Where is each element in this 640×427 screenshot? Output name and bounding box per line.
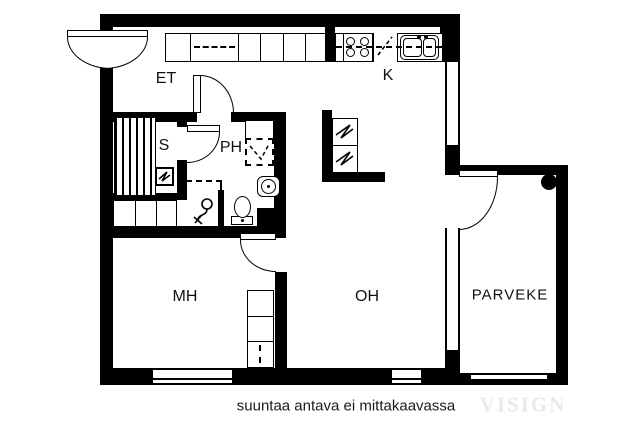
shower-screen-wall (218, 190, 224, 226)
closet-rail-dashed (194, 46, 235, 48)
storage-cell (156, 200, 177, 227)
shower-area-dashed (220, 180, 222, 191)
bedroom-door-arc (240, 240, 276, 272)
room-label-bathroom: PH (220, 139, 242, 157)
hall-closet-cell (283, 33, 306, 62)
living-room-window-balcony (445, 228, 460, 350)
sauna-heater-icon (155, 167, 174, 186)
flue-wall-horizontal (322, 172, 385, 182)
sink-faucet-icon (417, 35, 421, 39)
room-label-balcony: PARVEKE (472, 287, 548, 304)
hall-closet-cell (238, 33, 261, 62)
hall-closet-cell (260, 33, 284, 62)
sauna-benches (114, 117, 156, 196)
bedroom-window (153, 370, 232, 383)
hall-closet-cell (165, 33, 191, 62)
wardrobe-rail-dashed (259, 345, 261, 363)
sauna-door-leaf (187, 125, 220, 132)
outer-wall-top (100, 14, 460, 27)
shower-icon (192, 196, 216, 226)
flue-shaft-icon (332, 145, 358, 173)
kitchen-corner-wall (440, 27, 460, 62)
stove-burner-icon (346, 48, 355, 57)
basin-nook-wall (257, 208, 286, 227)
balcony-door-arc (459, 177, 498, 230)
sauna-door-arc (187, 132, 220, 163)
room-label-kitchen: K (383, 67, 394, 85)
flue-shaft-icon (332, 118, 358, 146)
bathroom-cabinet (245, 120, 274, 139)
bathroom-door-arc (200, 75, 234, 113)
room-label-hallway: ET (156, 70, 176, 88)
balcony-wall-right (556, 165, 568, 385)
kitchen-window (445, 62, 460, 145)
counter-edge-dashed (336, 46, 442, 48)
balcony-door-leaf (459, 170, 498, 177)
toilet-icon (234, 196, 251, 218)
floor-plan: ET K S PH MH OH PARVEKE suuntaa antava e… (0, 0, 640, 427)
wardrobe-cell (247, 316, 274, 342)
hall-kitchen-stub-wall (325, 14, 335, 62)
shower-area-dashed (186, 180, 222, 182)
entrance-door-leaf (67, 30, 148, 37)
floor-drain-icon (541, 174, 557, 190)
storage-cell (135, 200, 157, 227)
bathroom-door-leaf (193, 75, 201, 113)
stove-burner-icon (346, 37, 355, 46)
disclaimer-caption: suuntaa antava ei mittakaavassa (237, 398, 455, 415)
sauna-bath-wall-upper (177, 112, 187, 127)
sink-faucet-icon (424, 35, 428, 39)
hall-closet-cell (305, 33, 326, 62)
room-label-sauna: S (159, 137, 170, 155)
entrance-door-arc-in (104, 37, 148, 69)
stove-burner-icon (360, 37, 369, 46)
toilet-flush-dot (241, 219, 244, 222)
washbasin-drain (267, 185, 270, 188)
bedroom-door-leaf (240, 233, 276, 240)
wardrobe-cell (247, 290, 274, 317)
stove-burner-icon (360, 48, 369, 57)
room-label-living-room: OH (355, 288, 379, 306)
balcony-window (470, 374, 548, 380)
bedroom-living-wall (275, 272, 287, 368)
washing-machine-icon (245, 138, 274, 166)
watermark-logo: VISIGN (480, 393, 567, 418)
storage-cell (113, 200, 136, 227)
room-label-bedroom: MH (173, 288, 198, 306)
living-room-window (392, 370, 421, 383)
